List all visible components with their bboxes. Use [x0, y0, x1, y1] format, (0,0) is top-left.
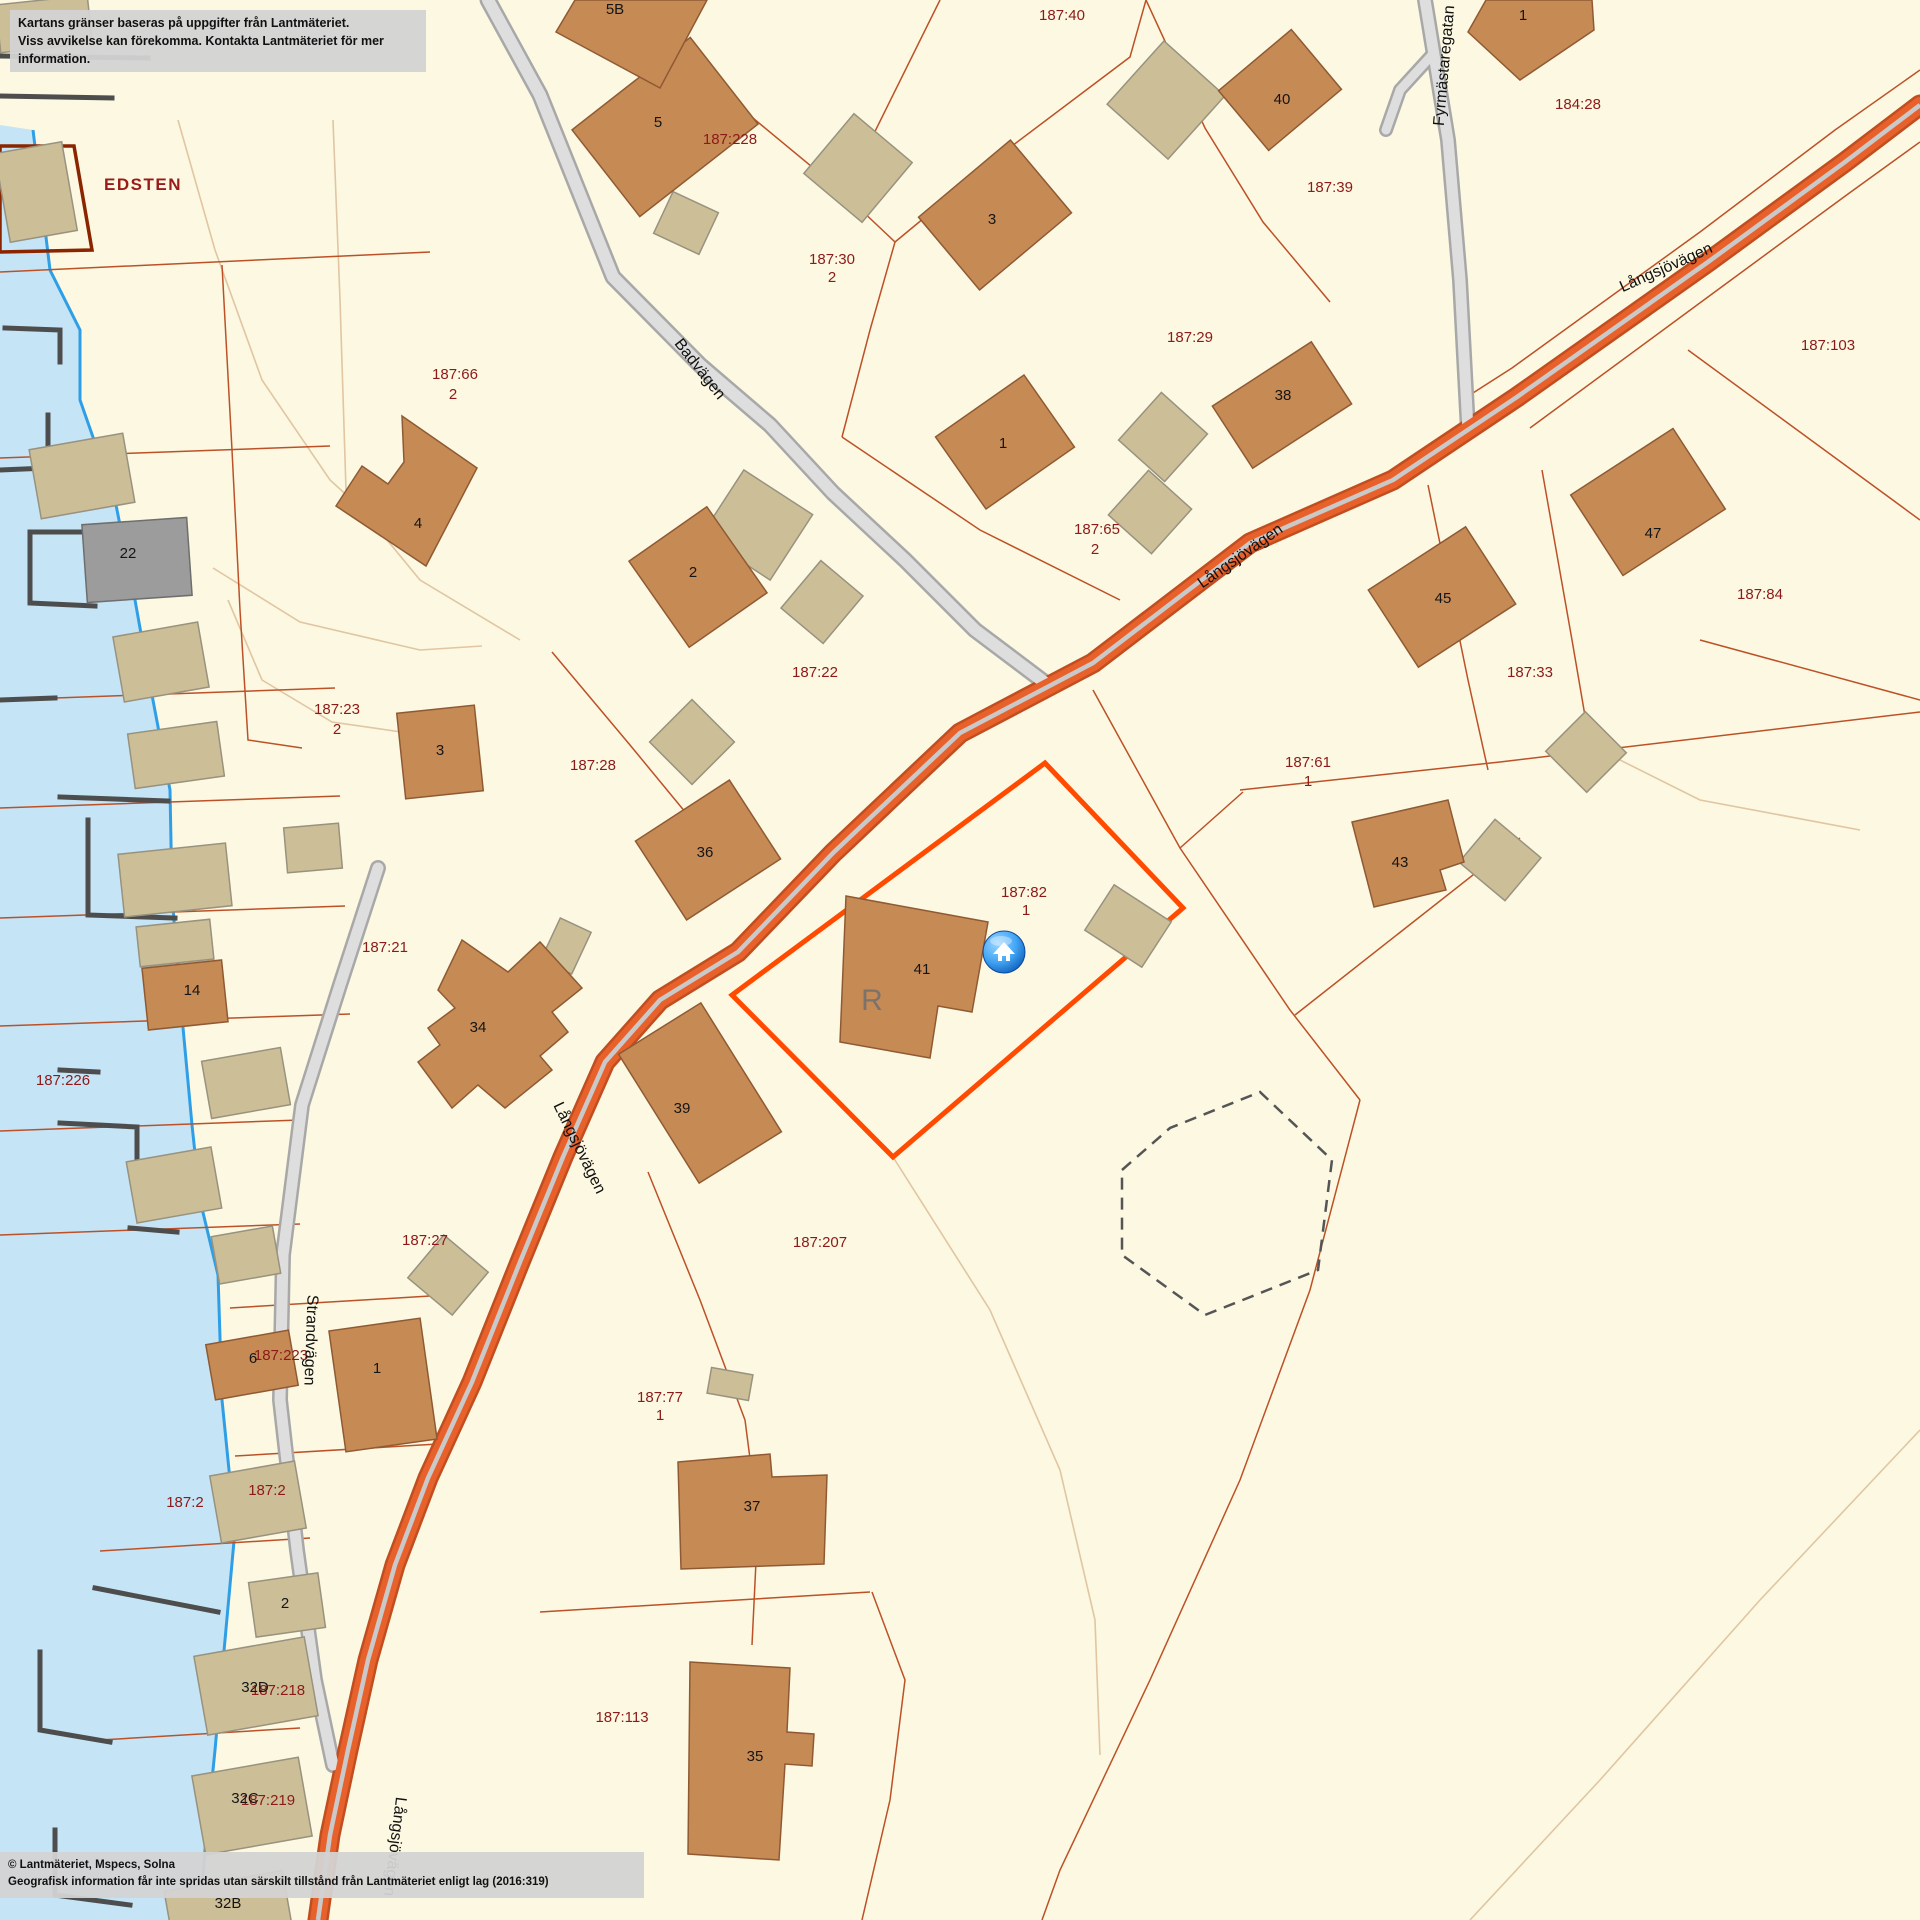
building-number-label: 40: [1274, 91, 1291, 108]
map-stage[interactable]: 187:40187:228187:302187:39184:28187:1031…: [0, 0, 1920, 1920]
parcel-label: 184:28: [1555, 96, 1601, 113]
building-number-label: 5B: [606, 1, 624, 18]
accessory-building: [136, 919, 214, 967]
disclaimer-line2: Viss avvikelse kan förekomma. Kontakta L…: [18, 32, 418, 68]
home-marker-icon[interactable]: [983, 931, 1025, 973]
parcel-label: 187:22: [792, 664, 838, 681]
residential-building: [329, 1318, 437, 1452]
building-number-label: 37: [744, 1498, 761, 1515]
accessory-building: [284, 823, 343, 873]
parcel-label: 2: [333, 721, 341, 738]
building-number-label: 38: [1275, 387, 1292, 404]
building-number-label: 6: [249, 1350, 257, 1367]
building-number-label: 36: [697, 844, 714, 861]
parcel-label: 1: [1304, 773, 1312, 790]
accessory-building: [211, 1226, 280, 1284]
parcel-label: 187:82: [1001, 884, 1047, 901]
parcel-label: 187:23: [314, 701, 360, 718]
building-number-label: 47: [1645, 525, 1662, 542]
parcel-label: 187:66: [432, 366, 478, 383]
parcel-label: 2: [828, 269, 836, 286]
survey-r-symbol: R: [861, 984, 883, 1017]
dock-line: [0, 698, 55, 700]
building-number-label: 14: [184, 982, 201, 999]
parcel-label: 187:207: [793, 1234, 847, 1251]
building-number-label: 5: [654, 114, 662, 131]
accessory-building: [118, 843, 232, 917]
parcel-label: 187:77: [637, 1389, 683, 1406]
accessory-building: [128, 722, 225, 789]
road-name-label: Strandvägen: [300, 1295, 320, 1386]
copyright-line2: Geografisk information får inte spridas …: [8, 1874, 636, 1891]
building-number-label: 1: [373, 1360, 381, 1377]
dock-line: [0, 96, 112, 98]
accessory-building: [210, 1461, 307, 1543]
gray-building: [82, 517, 192, 602]
cadastral-map-canvas[interactable]: 187:40187:228187:302187:39184:28187:1031…: [0, 0, 1920, 1920]
parcel-label: 187:2: [248, 1482, 286, 1499]
parcel-label: 187:40: [1039, 7, 1085, 24]
parcel-label: 187:228: [703, 131, 757, 148]
map-copyright: © Lantmäteriet, Mspecs, Solna Geografisk…: [0, 1852, 644, 1898]
parcel-label: 2: [449, 386, 457, 403]
building-number-label: 45: [1435, 590, 1452, 607]
parcel-label: 187:226: [36, 1072, 90, 1089]
parcel-label: 187:103: [1801, 337, 1855, 354]
parcel-label: 187:28: [570, 757, 616, 774]
disclaimer-line1: Kartans gränser baseras på uppgifter frå…: [18, 14, 418, 32]
parcel-label: 1: [1022, 902, 1030, 919]
parcel-label: 187:21: [362, 939, 408, 956]
building-number-label: 35: [747, 1748, 764, 1765]
building-number-label: 43: [1392, 854, 1409, 871]
building-number-label: 32D: [241, 1679, 269, 1696]
building-number-label: 2: [281, 1595, 289, 1612]
parcel-label: 187:33: [1507, 664, 1553, 681]
parcel-label: 187:2: [166, 1494, 204, 1511]
map-disclaimer: Kartans gränser baseras på uppgifter frå…: [10, 10, 426, 72]
building-number-label: 1: [1519, 7, 1527, 24]
building-number-label: 1: [999, 435, 1007, 452]
building-number-label: 22: [120, 545, 137, 562]
parcel-label: 187:29: [1167, 329, 1213, 346]
building-number-label: 32C: [231, 1790, 259, 1807]
parcel-label: 187:113: [595, 1709, 648, 1726]
parcel-label: 187:223: [254, 1347, 308, 1364]
parcel-label: 1: [656, 1407, 664, 1424]
building-number-label: 4: [414, 515, 422, 532]
district-label: EDSTEN: [104, 175, 182, 194]
parcel-label: 187:30: [809, 251, 855, 268]
building-number-label: 34: [470, 1019, 487, 1036]
parcel-label: 187:39: [1307, 179, 1353, 196]
building-number-label: 3: [436, 742, 444, 759]
building-number-label: 2: [689, 564, 697, 581]
building-number-label: 39: [674, 1100, 691, 1117]
accessory-building: [113, 622, 209, 702]
parcel-label: 187:61: [1285, 754, 1331, 771]
parcel-label: 187:84: [1737, 586, 1783, 603]
copyright-line1: © Lantmäteriet, Mspecs, Solna: [8, 1857, 636, 1874]
parcel-label: 187:65: [1074, 521, 1120, 538]
parcel-label: 187:27: [402, 1232, 448, 1249]
building-number-label: 3: [988, 211, 996, 228]
building-number-label: 41: [914, 961, 931, 978]
parcel-label: 2: [1091, 541, 1099, 558]
